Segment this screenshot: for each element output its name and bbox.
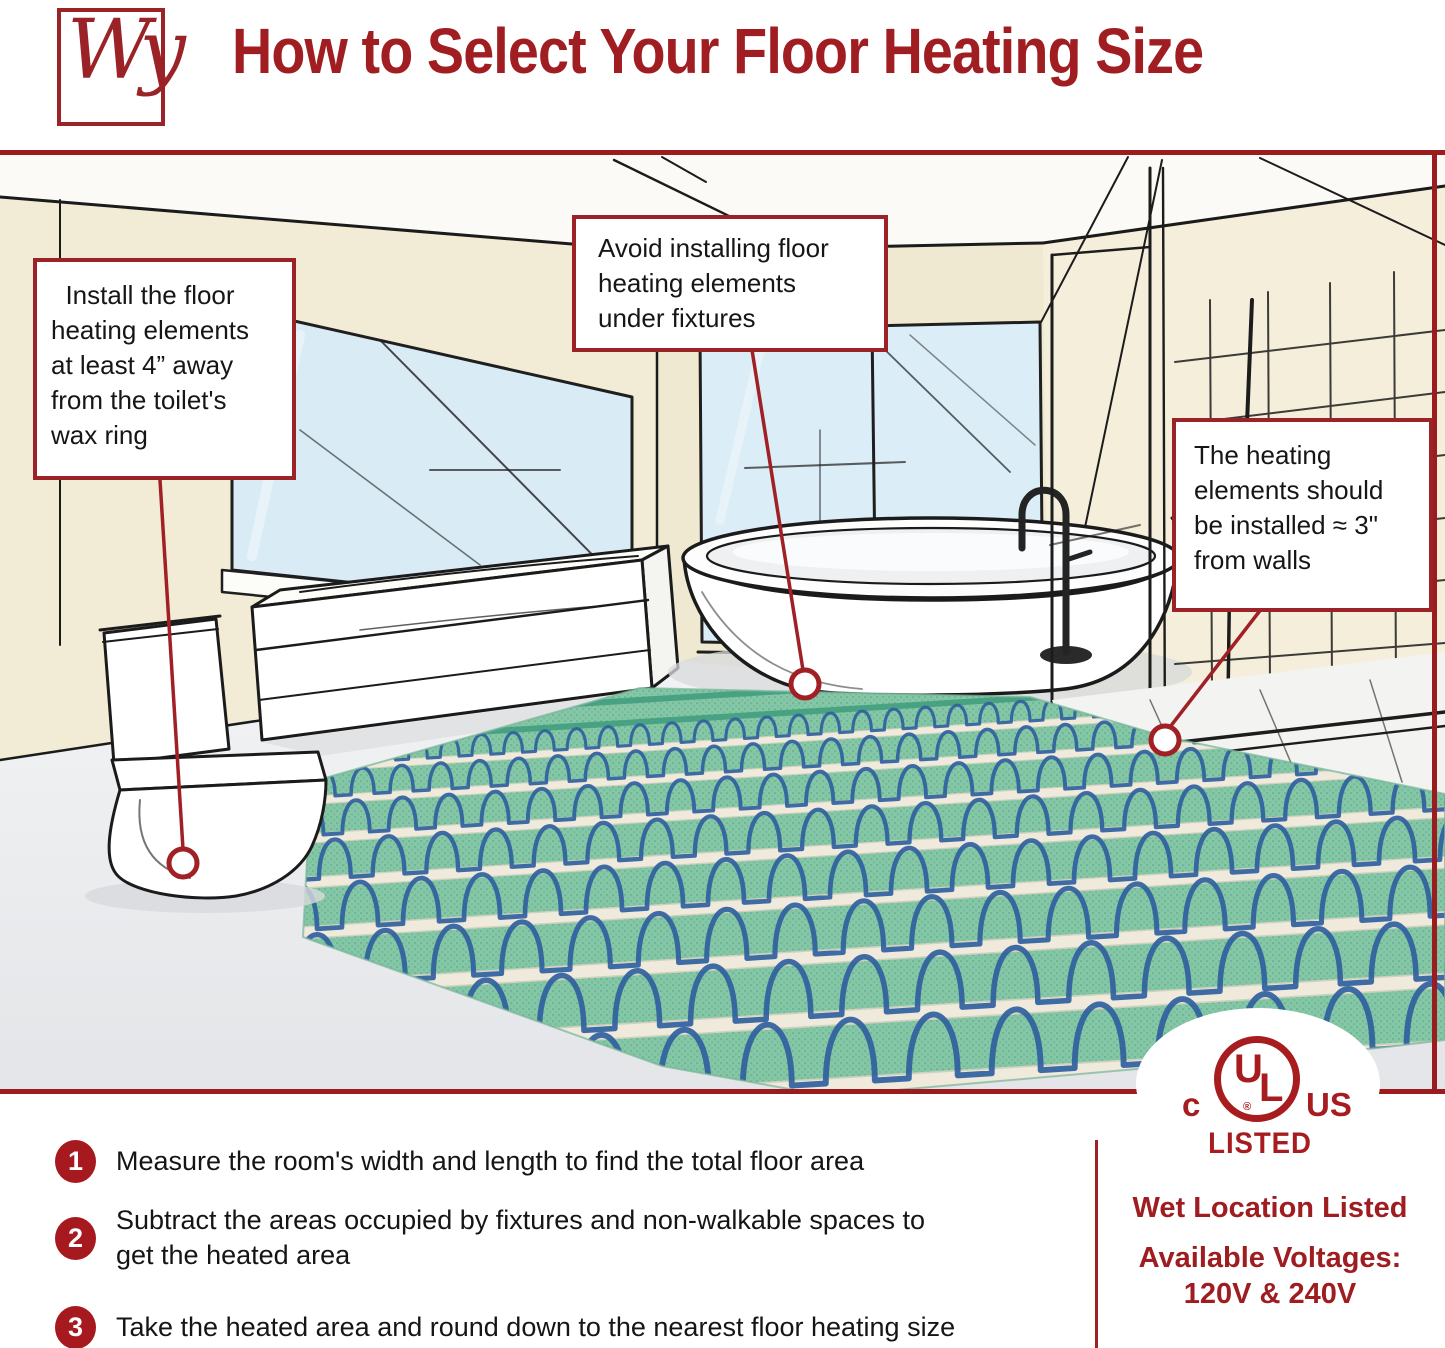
wall-marker bbox=[1151, 726, 1179, 754]
page-title: How to Select Your Floor Heating Size bbox=[232, 14, 1203, 88]
wet-location-label: Wet Location Listed bbox=[1100, 1192, 1440, 1225]
callout-avoid-fixtures: Avoid installing floor heating elements … bbox=[572, 215, 888, 352]
ul-registered-symbol: ® bbox=[1243, 1101, 1251, 1113]
footer-divider bbox=[1095, 1140, 1098, 1348]
step-2-badge: 2 bbox=[55, 1217, 96, 1260]
toilet-marker bbox=[169, 849, 197, 877]
ul-c-label: c bbox=[1182, 1086, 1200, 1124]
ul-us-label: US bbox=[1306, 1086, 1352, 1124]
voltages-label: Available Voltages: bbox=[1100, 1240, 1440, 1276]
bathtub bbox=[668, 518, 1192, 706]
step-item-2: 2 Subtract the areas occupied by fixture… bbox=[55, 1203, 1065, 1273]
ul-listed-label: LISTED bbox=[1159, 1127, 1361, 1161]
brand-logo: Wy bbox=[57, 8, 165, 126]
bathtub-marker bbox=[791, 670, 819, 698]
step-1-text: Measure the room's width and length to f… bbox=[116, 1144, 864, 1179]
ul-circle-icon: U L ® bbox=[1214, 1036, 1300, 1122]
callout-toilet-clearance: Install the floor heating elements at le… bbox=[33, 258, 296, 480]
step-2-text: Subtract the areas occupied by fixtures … bbox=[116, 1203, 925, 1273]
brand-logo-script: Wy bbox=[67, 0, 176, 105]
step-3-badge: 3 bbox=[55, 1306, 96, 1348]
callout-wall-clearance: The heating elements should be installed… bbox=[1172, 418, 1433, 612]
voltages-value: 120V & 240V bbox=[1100, 1276, 1440, 1312]
step-item-3: 3 Take the heated area and round down to… bbox=[55, 1306, 1065, 1348]
ul-letter-l: L bbox=[1259, 1066, 1283, 1111]
step-3-text: Take the heated area and round down to t… bbox=[116, 1310, 955, 1345]
ul-listed-mark: c U L ® US LISTED bbox=[1150, 1030, 1370, 1170]
footer-certifications: Wet Location Listed Available Voltages: … bbox=[1100, 1192, 1440, 1312]
infographic-root: Wy How to Select Your Floor Heating Size bbox=[0, 0, 1445, 1348]
step-item-1: 1 Measure the room's width and length to… bbox=[55, 1140, 1065, 1183]
step-1-badge: 1 bbox=[55, 1140, 96, 1183]
